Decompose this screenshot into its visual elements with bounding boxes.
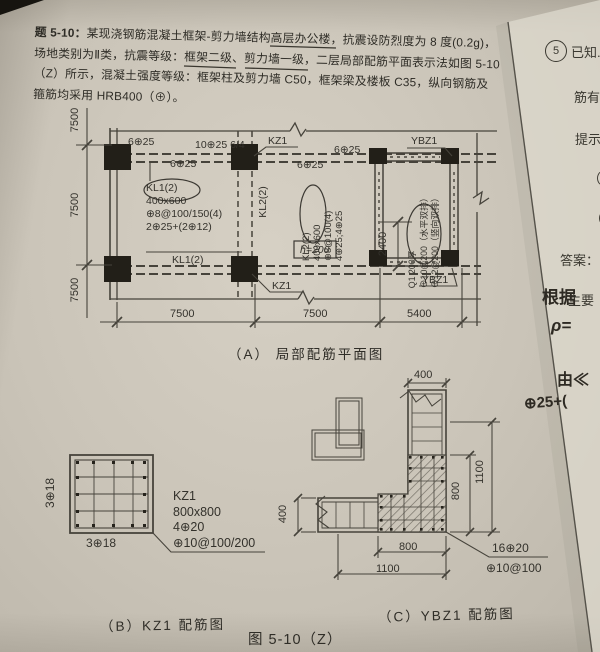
problem-statement: 题 5-10：某现浇钢筋混凝土框架-剪力墙结构高层办公楼，抗震设防烈度为 8 度… <box>33 22 517 116</box>
handwritten-note-3: 由≪ <box>557 366 589 390</box>
ybz1-dim-bottom-inner: 800 <box>399 541 417 553</box>
ybz1-stirrup-label: ⊕10@100 <box>486 561 542 575</box>
dim-bay3: 5400 <box>407 308 431 320</box>
ybz1-tie-detail <box>312 398 364 460</box>
dim-left-top: 7500 <box>69 108 81 132</box>
dim-left-bottom: 7500 <box>69 278 81 302</box>
rebar-label-support: 10⊕25 6/4 <box>195 139 245 151</box>
ybz1-bars-label: 16⊕20 <box>492 541 529 555</box>
wall-annotation: Q1 200厚 ⊕10@200（水平双排） ⊕12@200（竖向双排） <box>407 178 442 288</box>
problem-number: 题 5-10： <box>35 25 87 40</box>
handwritten-note-4: ⊕25+( <box>523 392 567 413</box>
margin-text-4: （ <box>588 168 600 187</box>
rebar-label-top-right: 6⊕25 <box>334 144 360 156</box>
margin-text-2: 筋有 <box>574 87 600 106</box>
ybz1-dim-top: 400 <box>414 369 432 381</box>
kl2-span-tag: KL2(2) <box>257 186 269 218</box>
ybz1-caption: （C）YBZ1 配筋图 <box>378 602 515 626</box>
handwritten-note-1: 根据 <box>542 283 576 308</box>
margin-text-3: 提示 <box>575 129 600 148</box>
ybz1-tag-top: YBZ1 <box>411 135 437 147</box>
kl1-span-tag: KL1(2) <box>172 254 204 266</box>
margin-text-6: 答案： <box>560 250 599 269</box>
kz1-bottom-bars-label: 3⊕18 <box>86 536 116 550</box>
kz1-note-block: KZ1 800x800 4⊕20 ⊕10@100/200 <box>173 489 255 551</box>
margin-text-1: 已知. <box>571 42 600 61</box>
kz1-tag-bottom: KZ1 <box>272 280 291 292</box>
ybz1-dim-left: 400 <box>277 505 289 523</box>
kl1-annotation: KL1(2) 400x600 ⊕8@100/150(4) 2⊕25+(2⊕12) <box>146 182 222 234</box>
ybz1-dim-bottom-outer: 1100 <box>376 563 400 575</box>
plan-caption: （A） 局部配筋平面图 <box>228 343 384 363</box>
dim-wall-opening: 2400 <box>377 232 389 256</box>
rebar-label-top-left: 6⊕25 <box>128 136 154 148</box>
scanned-textbook-page: 题 5-10：某现浇钢筋混凝土框架-剪力墙结构高层办公楼，抗震设防烈度为 8 度… <box>0 0 600 652</box>
figure-caption: 图 5-10（Z） <box>248 628 342 649</box>
rebar-label-bottom-left: 6⊕25 <box>170 158 196 170</box>
kz1-caption: （B）KZ1 配筋图 <box>100 613 225 635</box>
kz1-tag-top: KZ1 <box>268 135 287 147</box>
dim-bay2: 7500 <box>303 308 327 320</box>
margin-text-5: （ <box>590 208 600 227</box>
kz1-side-bars-label: 3⊕18 <box>43 478 57 508</box>
dim-left-mid: 7500 <box>69 193 81 217</box>
ybz1-dim-right-outer: 1100 <box>474 460 486 484</box>
slab-thickness-label: h=200 <box>300 244 330 256</box>
ybz1-dim-right-inner: 800 <box>450 482 462 500</box>
dim-bay1: 7500 <box>170 308 194 320</box>
handwritten-note-2: ρ= <box>551 316 571 336</box>
item-number-circle: 5 <box>545 40 567 62</box>
